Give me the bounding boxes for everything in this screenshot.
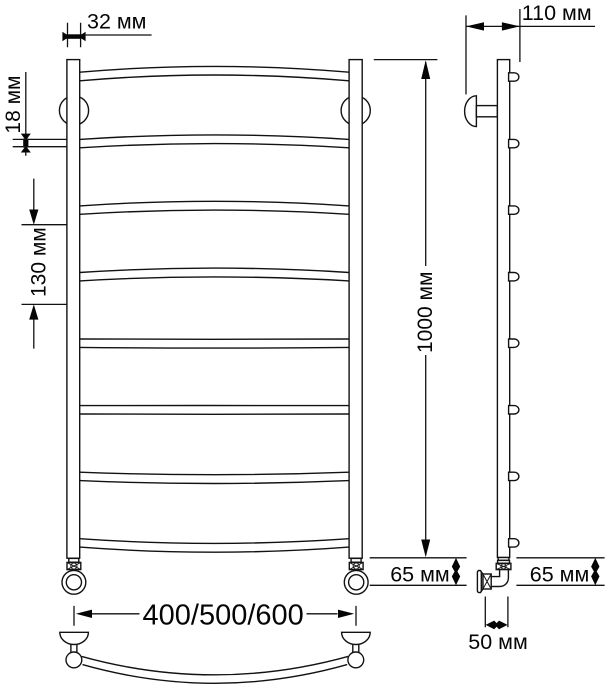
- svg-text:400/500/600: 400/500/600: [143, 599, 304, 631]
- svg-text:110 мм: 110 мм: [522, 1, 592, 25]
- svg-text:1000 мм: 1000 мм: [414, 272, 437, 353]
- svg-text:65 мм: 65 мм: [390, 562, 449, 586]
- svg-text:130 мм: 130 мм: [28, 227, 51, 297]
- svg-text:18 мм: 18 мм: [2, 76, 25, 134]
- svg-text:50 мм: 50 мм: [468, 630, 527, 654]
- svg-text:32 мм: 32 мм: [87, 10, 146, 34]
- svg-text:65 мм: 65 мм: [530, 562, 589, 586]
